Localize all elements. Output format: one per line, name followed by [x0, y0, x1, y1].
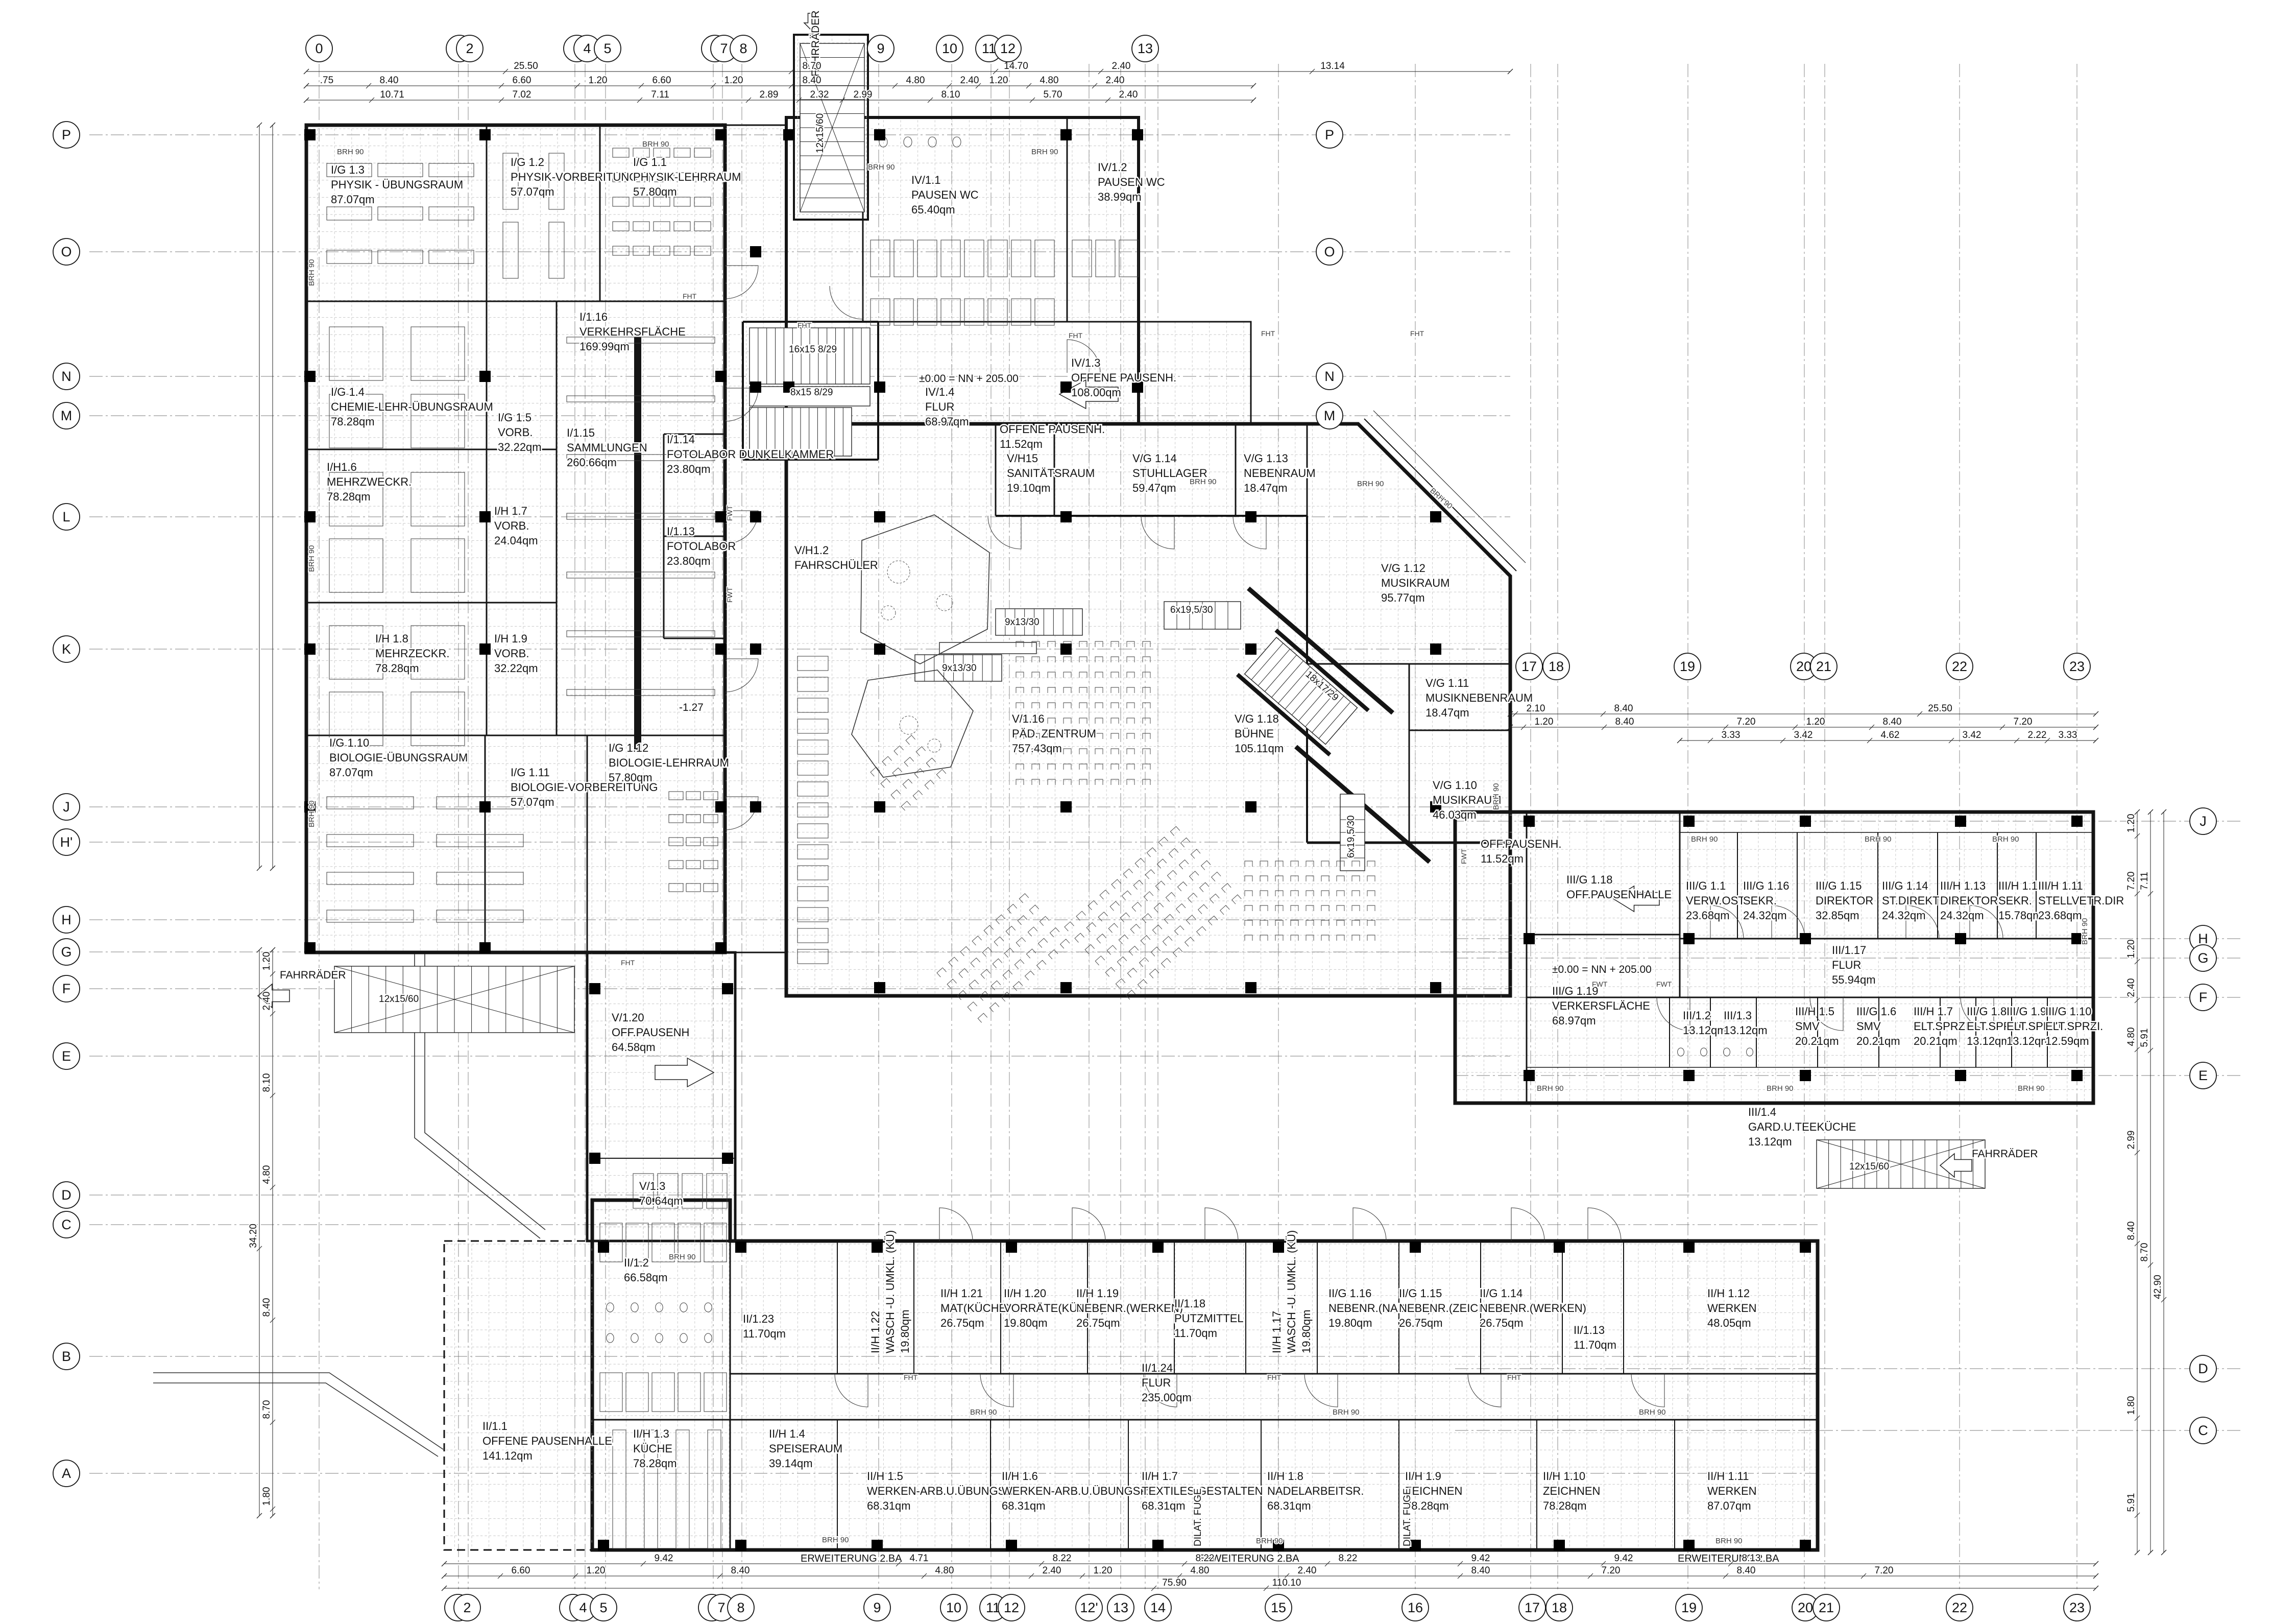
dimension-value: 3.42	[1963, 730, 1981, 741]
svg-text:24.32qm: 24.32qm	[1882, 909, 1926, 922]
dimension-value: 1.20	[2126, 814, 2137, 833]
dimension-value: 1.80	[261, 1487, 272, 1506]
svg-text:WERKEN-ARB.U.ÜBUNGSR.: WERKEN-ARB.U.ÜBUNGSR.	[1002, 1485, 1151, 1497]
dimension-value: 8.40	[2126, 1222, 2137, 1240]
window-sill-label: BRH 90	[1492, 783, 1501, 810]
svg-text:PAUSEN WC: PAUSEN WC	[911, 188, 979, 201]
svg-text:68.97qm: 68.97qm	[925, 415, 969, 428]
axis-bubble-8: 8	[730, 35, 757, 62]
svg-text:87.07qm: 87.07qm	[1707, 1499, 1751, 1512]
svg-text:D: D	[2198, 1361, 2208, 1376]
svg-text:II/H 1.17: II/H 1.17	[1270, 1311, 1283, 1353]
dimension-value: 7.20	[2126, 872, 2137, 891]
svg-text:K: K	[62, 641, 71, 657]
svg-text:II/H 1.4: II/H 1.4	[769, 1427, 805, 1440]
axis-bubble-A: A	[53, 1460, 80, 1487]
axis-bubble-19: 19	[1676, 1594, 1702, 1621]
dimension-value: 1.20	[589, 75, 608, 86]
svg-text:68.31qm: 68.31qm	[1142, 1499, 1186, 1512]
svg-text:III/H 1.5: III/H 1.5	[1795, 1005, 1834, 1018]
svg-text:II/H 1.10: II/H 1.10	[1543, 1470, 1585, 1483]
svg-text:5: 5	[603, 41, 611, 56]
svg-text:I/1.14: I/1.14	[667, 433, 695, 446]
svg-text:SPEISERAUM: SPEISERAUM	[769, 1442, 842, 1455]
axis-bubble-5: 5	[594, 35, 621, 62]
svg-text:II/G 1.15: II/G 1.15	[1399, 1287, 1442, 1300]
svg-text:8: 8	[739, 41, 747, 56]
axis-bubble-N: N	[53, 363, 80, 390]
svg-text:III/1.3: III/1.3	[1724, 1009, 1752, 1022]
svg-text:E: E	[62, 1048, 71, 1064]
svg-text:24.04qm: 24.04qm	[494, 534, 538, 547]
svg-text:13: 13	[1138, 41, 1153, 56]
dimension-value: 4.80	[906, 75, 925, 86]
axis-bubble-16: 16	[1402, 1594, 1429, 1621]
axis-bubble-21: 21	[1810, 653, 1837, 680]
axis-bubble-9: 9	[864, 1594, 890, 1621]
svg-text:III/G 1.9: III/G 1.9	[2007, 1005, 2046, 1018]
building-bottom-wing	[592, 1200, 1818, 1550]
svg-text:V/1.20: V/1.20	[612, 1011, 644, 1024]
dimension-value: 8.22	[1339, 1553, 1358, 1564]
svg-text:PUTZMITTEL: PUTZMITTEL	[1174, 1312, 1244, 1325]
dimension-value: 1.20	[1806, 717, 1825, 727]
svg-text:FLUR: FLUR	[925, 400, 954, 413]
svg-text:68.31qm: 68.31qm	[1267, 1499, 1311, 1512]
dimension-value: 4.80	[1191, 1565, 1210, 1576]
svg-text:M: M	[61, 408, 72, 423]
svg-text:10: 10	[946, 1600, 961, 1615]
svg-text:V/G 1.11: V/G 1.11	[1425, 677, 1469, 689]
svg-text:23.80qm: 23.80qm	[667, 463, 711, 475]
stair-run	[334, 966, 574, 1033]
svg-text:169.99qm: 169.99qm	[579, 340, 630, 353]
dimension-value: 1.20	[1535, 717, 1554, 727]
svg-text:0: 0	[315, 41, 323, 56]
svg-text:5: 5	[599, 1600, 607, 1615]
axis-bubble-22: 22	[1946, 1594, 1973, 1621]
annotation: FAHRRÄDER	[280, 969, 346, 981]
axis-bubble-18: 18	[1543, 653, 1569, 680]
axis-bubble-N: N	[1316, 363, 1343, 390]
svg-text:26.75qm: 26.75qm	[1399, 1317, 1443, 1329]
svg-text:PÄD. ZENTRUM: PÄD. ZENTRUM	[1012, 727, 1096, 740]
axis-bubble-Hp: H'	[53, 829, 80, 855]
svg-text:NADELARBEITSR.: NADELARBEITSR.	[1267, 1485, 1364, 1497]
axis-bubble-J: J	[2190, 808, 2216, 834]
dimension-value: 7.02	[513, 89, 531, 100]
svg-text:13.12qm: 13.12qm	[1748, 1135, 1792, 1148]
dimension-value: 6.60	[513, 75, 531, 86]
svg-text:MEHRZECKR.: MEHRZECKR.	[375, 647, 449, 660]
axis-bubble-O: O	[1316, 238, 1343, 265]
axis-bubble-M: M	[1316, 402, 1343, 429]
svg-text:P: P	[62, 127, 71, 142]
svg-text:20: 20	[1796, 659, 1811, 674]
svg-text:VERKEHRSFLÄCHE: VERKEHRSFLÄCHE	[579, 325, 686, 338]
window-sill-label: BRH 90	[1333, 1408, 1360, 1417]
axis-bubble-G: G	[2190, 945, 2216, 971]
dimension-value: 5.70	[1044, 89, 1062, 100]
svg-text:FLUR: FLUR	[1142, 1376, 1171, 1389]
dimension-value: 25.50	[514, 61, 538, 71]
dimension-value: 1.20	[724, 75, 743, 86]
svg-text:26.75qm: 26.75qm	[1480, 1317, 1524, 1329]
svg-text:I/G 1.11: I/G 1.11	[511, 766, 550, 779]
svg-text:III/1.4: III/1.4	[1748, 1106, 1776, 1118]
svg-text:V/1.3: V/1.3	[639, 1180, 665, 1192]
svg-text:PAUSEN WC: PAUSEN WC	[1098, 176, 1165, 188]
dimension-value: 8.40	[803, 75, 821, 86]
axis-bubble-F: F	[53, 975, 80, 1002]
svg-text:23.80qm: 23.80qm	[667, 555, 711, 567]
svg-text:OFF.PAUSENHALLE: OFF.PAUSENHALLE	[1566, 888, 1672, 901]
svg-text:II/H 1.20: II/H 1.20	[1004, 1287, 1046, 1300]
svg-text:26.75qm: 26.75qm	[940, 1317, 984, 1329]
axis-bubble-12: 12	[995, 35, 1021, 62]
svg-text:SMV: SMV	[1795, 1020, 1820, 1033]
svg-text:II/H 1.7: II/H 1.7	[1142, 1470, 1178, 1483]
svg-text:O: O	[61, 244, 71, 259]
svg-text:I/1.13: I/1.13	[667, 525, 695, 538]
dimension-value: 1.20	[2126, 940, 2137, 959]
svg-text:II/1.24: II/1.24	[1142, 1362, 1173, 1374]
window-sill-label: BRH 90	[1537, 1084, 1564, 1093]
window-sill-label: BRH 90	[1639, 1408, 1666, 1417]
building-offene-pausenhalle	[444, 1241, 592, 1550]
svg-text:14: 14	[1150, 1600, 1166, 1615]
svg-text:19.80qm: 19.80qm	[1300, 1309, 1313, 1353]
door-type-label: FHT	[797, 321, 812, 329]
svg-text:C: C	[2198, 1423, 2208, 1438]
svg-text:SEKR.: SEKR.	[1743, 894, 1777, 907]
axis-bubble-8: 8	[728, 1594, 754, 1621]
dimension-value: 9.42	[655, 1553, 673, 1564]
axis-bubble-13: 13	[1132, 35, 1158, 62]
dimension-value: 2.40	[1119, 89, 1138, 100]
annotation: -1.27	[679, 702, 704, 713]
svg-text:20.21qm: 20.21qm	[1914, 1035, 1957, 1047]
dimension-value: 9.42	[1471, 1553, 1490, 1564]
svg-text:18: 18	[1549, 659, 1564, 674]
dimension-value: 8.40	[380, 75, 399, 86]
svg-text:VORB.: VORB.	[498, 426, 533, 439]
svg-text:PHYSIK-LEHRRAUM: PHYSIK-LEHRRAUM	[633, 171, 741, 183]
axis-bubble-12p: 12'	[1076, 1594, 1102, 1621]
svg-text:I/G 1.2: I/G 1.2	[511, 156, 544, 169]
window-sill-label: BRH 90	[307, 259, 316, 286]
svg-text:V/G 1.18: V/G 1.18	[1235, 712, 1279, 725]
dimension-value: 8.40	[1471, 1565, 1490, 1576]
svg-text:7: 7	[717, 1600, 725, 1615]
svg-text:17: 17	[1521, 659, 1537, 674]
door-type-label: FWT	[1460, 848, 1468, 864]
window-sill-label: BRH 90	[2081, 918, 2089, 945]
svg-text:19.10qm: 19.10qm	[1007, 482, 1051, 494]
svg-text:16: 16	[1408, 1600, 1423, 1615]
svg-text:NEBENR.(WERKEN): NEBENR.(WERKEN)	[1076, 1302, 1183, 1315]
svg-text:108.00qm: 108.00qm	[1071, 386, 1121, 399]
svg-text:ELT.SPRZI.: ELT.SPRZI.	[1914, 1020, 1971, 1033]
svg-text:39.14qm: 39.14qm	[769, 1457, 813, 1470]
svg-text:19: 19	[1681, 1600, 1697, 1615]
door-type-label: FWT	[1592, 980, 1608, 988]
svg-text:19.80qm: 19.80qm	[1328, 1317, 1372, 1329]
svg-text:57.07qm: 57.07qm	[511, 796, 554, 808]
svg-text:I/H1.6: I/H1.6	[327, 461, 357, 473]
axis-bubble-O: O	[53, 238, 80, 265]
svg-text:V/G 1.10: V/G 1.10	[1433, 779, 1477, 792]
svg-text:NEBENR.(WERKEN): NEBENR.(WERKEN)	[1480, 1302, 1586, 1315]
dimension-value: 4.80	[261, 1165, 272, 1184]
svg-text:BÜHNE: BÜHNE	[1235, 727, 1274, 740]
svg-text:11.70qm: 11.70qm	[1574, 1339, 1616, 1351]
dimension-value: 2.99	[2126, 1131, 2137, 1150]
dimension-value: 8.22	[1196, 1553, 1215, 1564]
svg-text:87.07qm: 87.07qm	[331, 193, 375, 206]
dimension-value: 1.80	[2126, 1396, 2137, 1415]
svg-text:I/H 1.7: I/H 1.7	[494, 505, 527, 517]
svg-text:III/G 1.6: III/G 1.6	[1856, 1005, 1896, 1018]
svg-text:J: J	[63, 799, 70, 815]
svg-text:III/G 1.1: III/G 1.1	[1686, 879, 1726, 892]
annotation: 12x15/60	[379, 994, 419, 1005]
dimension-value: 110.10	[1272, 1578, 1301, 1588]
door-type-label: FHT	[683, 292, 697, 300]
svg-text:I/H 1.9: I/H 1.9	[494, 632, 527, 645]
svg-text:55.94qm: 55.94qm	[1832, 973, 1876, 986]
floor-plan-drawing: I/G 1.3PHYSIK - ÜBUNGSRAUM87.07qmI/G 1.2…	[0, 0, 2296, 1624]
dimension-value: 7.20	[1602, 1565, 1621, 1576]
svg-text:II/H 1.22: II/H 1.22	[869, 1311, 882, 1353]
svg-text:WASCH -U. UMKL. (KÜ): WASCH -U. UMKL. (KÜ)	[884, 1230, 897, 1353]
door-type-label: FWT	[726, 587, 734, 603]
dimension-value: 2.10	[1527, 703, 1545, 714]
svg-text:48.05qm: 48.05qm	[1707, 1317, 1751, 1329]
svg-text:O: O	[1324, 244, 1335, 259]
axis-bubble-18: 18	[1546, 1594, 1573, 1621]
svg-text:59.47qm: 59.47qm	[1132, 482, 1176, 494]
svg-text:N: N	[61, 369, 71, 384]
door-type-label: FWT	[726, 505, 734, 521]
svg-text:III/G 1.15: III/G 1.15	[1816, 879, 1862, 892]
svg-text:WERKEN: WERKEN	[1707, 1485, 1757, 1497]
axis-bubble-M: M	[53, 402, 80, 429]
svg-text:OFFENE PAUSENH.: OFFENE PAUSENH.	[1000, 423, 1105, 436]
window-sill-label: BRH 90	[1715, 1537, 1743, 1545]
axis-bubble-2: 2	[456, 35, 483, 62]
svg-text:II/1.2: II/1.2	[624, 1256, 649, 1269]
axis-bubble-15: 15	[1265, 1594, 1292, 1621]
axis-bubble-12: 12	[998, 1594, 1025, 1621]
svg-text:21: 21	[1816, 659, 1831, 674]
svg-text:23: 23	[2069, 1600, 2085, 1615]
svg-text:I/G 1.12: I/G 1.12	[609, 742, 648, 754]
axis-bubble-13: 13	[1107, 1594, 1134, 1621]
window-sill-label: BRH 90	[1992, 835, 2019, 844]
dimension-value: 3.33	[1722, 730, 1741, 741]
dimension-value: 10.71	[380, 89, 404, 100]
svg-text:V/G 1.14: V/G 1.14	[1132, 452, 1177, 465]
svg-text:19: 19	[1680, 659, 1695, 674]
dimension-value: .75	[320, 75, 333, 86]
axis-bubble-B: B	[53, 1343, 80, 1370]
svg-text:II/H 1.12: II/H 1.12	[1707, 1287, 1750, 1300]
dimension-value: 8.70	[2139, 1243, 2150, 1262]
svg-text:SMV: SMV	[1856, 1020, 1881, 1033]
svg-text:23.68qm: 23.68qm	[1686, 909, 1730, 922]
room-label-ii-h-1-12: II/H 1.12WERKEN48.05qm	[1707, 1287, 1757, 1329]
svg-text:III/H 1.13: III/H 1.13	[1940, 879, 1986, 892]
svg-text:BIOLOGIE-ÜBUNGSRAUM: BIOLOGIE-ÜBUNGSRAUM	[329, 751, 468, 764]
svg-text:87.07qm: 87.07qm	[329, 766, 373, 779]
svg-text:III/G 1.14: III/G 1.14	[1882, 879, 1928, 892]
svg-text:BIOLOGIE-LEHRRAUM: BIOLOGIE-LEHRRAUM	[609, 756, 729, 769]
svg-text:13: 13	[1113, 1600, 1128, 1615]
svg-text:SAMMLUNGEN: SAMMLUNGEN	[567, 441, 647, 454]
svg-text:IV/1.3: IV/1.3	[1071, 356, 1100, 369]
svg-text:II/H 1.11: II/H 1.11	[1707, 1470, 1749, 1483]
svg-text:9: 9	[873, 1600, 881, 1615]
axis-bubble-19: 19	[1674, 653, 1701, 680]
svg-text:V/1.16: V/1.16	[1012, 712, 1045, 725]
window-sill-label: BRH 90	[1190, 477, 1217, 486]
svg-text:68.31qm: 68.31qm	[867, 1499, 911, 1512]
svg-text:II/G 1.14: II/G 1.14	[1480, 1287, 1522, 1300]
window-sill-label: BRH 90	[1767, 1084, 1794, 1093]
svg-text:2: 2	[466, 41, 473, 56]
svg-text:CHEMIE-LEHR-ÜBUNGSRAUM: CHEMIE-LEHR-ÜBUNGSRAUM	[331, 400, 493, 413]
window-sill-label: BRH 90	[337, 148, 364, 156]
dimension-value: 25.50	[1928, 703, 1952, 714]
annotation: DILAT. FUGE	[1193, 1488, 1203, 1546]
window-sill-label: BRH 90	[642, 140, 669, 149]
dimension-value: 8.70	[261, 1400, 272, 1419]
dimension-value: 2.99	[854, 89, 873, 100]
svg-text:III/G 1.18: III/G 1.18	[1566, 873, 1613, 886]
dimension-value: 13.14	[1320, 61, 1345, 71]
annotation: 9x13/30	[942, 663, 977, 674]
axis-bubble-5: 5	[590, 1594, 617, 1621]
svg-text:I/G 1.10: I/G 1.10	[329, 736, 369, 749]
window-sill-label: BRH 90	[307, 545, 316, 572]
dimension-value: 2.40	[1112, 61, 1131, 71]
svg-text:11: 11	[982, 41, 996, 56]
floor-plan-sheet: I/G 1.3PHYSIK - ÜBUNGSRAUM87.07qmI/G 1.2…	[0, 0, 2296, 1624]
svg-text:III/H 1.11: III/H 1.11	[2038, 879, 2083, 892]
svg-text:46.03qm: 46.03qm	[1433, 808, 1477, 821]
svg-text:N: N	[1324, 369, 1335, 384]
svg-text:9: 9	[877, 41, 884, 56]
svg-text:V/H15: V/H15	[1007, 452, 1038, 465]
svg-text:III/G 1.19: III/G 1.19	[1552, 985, 1599, 997]
svg-text:12: 12	[1000, 41, 1016, 56]
dimension-value: 3.42	[1794, 730, 1813, 741]
axis-bubble-C: C	[2190, 1417, 2216, 1444]
svg-text:D: D	[61, 1187, 71, 1203]
svg-text:F: F	[62, 981, 71, 996]
svg-text:78.28qm: 78.28qm	[375, 662, 419, 675]
svg-text:II/H 1.8: II/H 1.8	[1267, 1470, 1303, 1483]
svg-text:II/H 1.21: II/H 1.21	[940, 1287, 983, 1300]
dimension-value: 8.40	[1737, 1565, 1756, 1576]
door-type-label: FHT	[1410, 329, 1424, 338]
dimension-value: 3.33	[2059, 730, 2077, 741]
svg-text:20.21qm: 20.21qm	[1795, 1035, 1839, 1047]
axis-bubble-9: 9	[867, 35, 894, 62]
axis-bubble-P: P	[53, 122, 80, 148]
axis-bubble-P: P	[1316, 122, 1343, 148]
svg-text:OFF.PAUSENH.: OFF.PAUSENH.	[1481, 838, 1562, 850]
svg-text:DIREKTOR: DIREKTOR	[1940, 894, 1998, 907]
svg-text:MUSIKRAUM: MUSIKRAUM	[1381, 577, 1449, 589]
window-sill-label: BRH 90	[669, 1253, 696, 1261]
svg-text:2: 2	[463, 1600, 471, 1615]
door-type-label: FHT	[1267, 1373, 1282, 1381]
svg-text:DIREKTOR: DIREKTOR	[1816, 894, 1873, 907]
axis-bubble-14: 14	[1145, 1594, 1171, 1621]
svg-text:78.28qm: 78.28qm	[331, 415, 375, 428]
annotation: FAHRRÄDER	[1972, 1148, 2038, 1160]
svg-text:II/H 1.9: II/H 1.9	[1405, 1470, 1441, 1483]
svg-text:FOTOLABOR DUNKELKAMMER: FOTOLABOR DUNKELKAMMER	[667, 448, 834, 461]
svg-text:I/H 1.8: I/H 1.8	[375, 632, 408, 645]
svg-text:10: 10	[942, 41, 957, 56]
dimension-value: 5.91	[2139, 1029, 2150, 1047]
dimension-value: 7.20	[2014, 717, 2033, 727]
svg-text:11.70qm: 11.70qm	[1174, 1327, 1217, 1340]
svg-text:65.40qm: 65.40qm	[911, 203, 955, 216]
svg-text:II/H 1.19: II/H 1.19	[1076, 1287, 1119, 1300]
svg-text:L: L	[62, 509, 70, 524]
axis-bubble-17: 17	[1519, 1594, 1545, 1621]
svg-text:IV/1.1: IV/1.1	[911, 174, 940, 186]
stair-run	[750, 328, 870, 384]
dimension-value: 2.40	[1106, 75, 1125, 86]
window-sill-label: BRH 90	[2018, 1084, 2045, 1093]
svg-text:ZEICHNEN: ZEICHNEN	[1405, 1485, 1462, 1497]
dimension-value: 1.20	[261, 952, 272, 971]
svg-text:64.58qm: 64.58qm	[612, 1041, 656, 1054]
window-sill-label: BRH 90	[970, 1408, 997, 1417]
svg-text:24.32qm: 24.32qm	[1743, 909, 1787, 922]
svg-text:E: E	[2198, 1068, 2208, 1083]
dimension-value: 2.89	[760, 89, 779, 100]
annotation: ±0.00 = NN + 205.00	[919, 373, 1019, 385]
svg-text:SEKR.: SEKR.	[1998, 894, 2032, 907]
svg-text:12.59qm: 12.59qm	[2045, 1035, 2089, 1047]
svg-text:22: 22	[1952, 1600, 1967, 1615]
svg-text:32.85qm: 32.85qm	[1816, 909, 1859, 922]
axis-bubble-D: D	[2190, 1355, 2216, 1382]
dimension-value: 6.60	[512, 1565, 530, 1576]
dimension-value: 4.62	[1881, 730, 1900, 741]
svg-text:III/H 1.12: III/H 1.12	[1998, 879, 2044, 892]
annotation: 6x19,5/30	[1170, 605, 1213, 615]
svg-text:11.52qm: 11.52qm	[1000, 438, 1043, 450]
svg-text:FLUR: FLUR	[1832, 959, 1861, 971]
annotation: 8x15 8/29	[790, 387, 833, 398]
window-sill-label: BRH 90	[868, 163, 895, 172]
svg-text:78.28qm: 78.28qm	[1543, 1499, 1587, 1512]
dimension-value: 9.42	[1614, 1553, 1633, 1564]
dimension-value: 8.40	[731, 1565, 750, 1576]
axis-bubble-23: 23	[2064, 653, 2090, 680]
dimension-value: 8.40	[1614, 703, 1633, 714]
svg-text:F: F	[2199, 990, 2208, 1005]
svg-text:4: 4	[579, 1600, 587, 1615]
axis-bubble-10: 10	[936, 35, 963, 62]
